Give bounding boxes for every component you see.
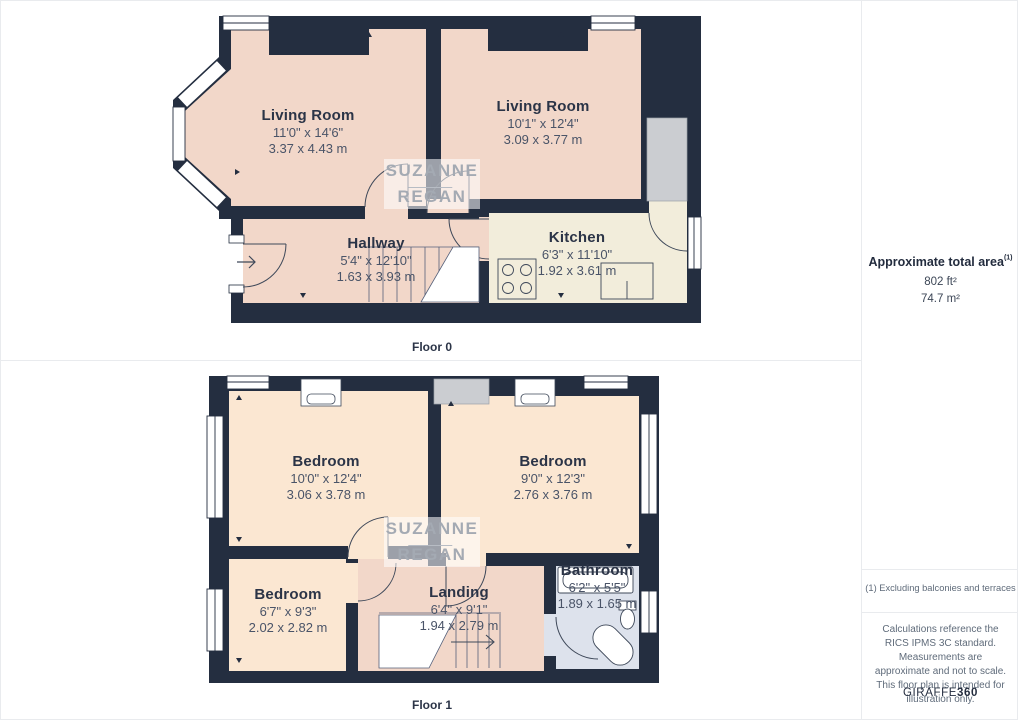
- room-dim-imperial: 10'1" x 12'4": [496, 116, 589, 131]
- total-area-imperial: 802 ft²: [862, 276, 1018, 288]
- storage-recess: [647, 118, 687, 201]
- room-label-bedroom-1: Bedroom 10'0" x 12'4" 3.06 x 3.78 m: [287, 453, 366, 502]
- room-name: Landing: [420, 584, 499, 601]
- room-name: Bedroom: [249, 586, 328, 603]
- watermark-floor1: SUZANNE REGAN: [384, 517, 480, 567]
- room-dim-metric: 3.37 x 4.43 m: [261, 141, 354, 156]
- room-label-landing: Landing 6'4" x 9'1" 1.94 x 2.79 m: [420, 584, 499, 633]
- room-label-bedroom-2: Bedroom 9'0" x 12'3" 2.76 x 3.76 m: [514, 453, 593, 502]
- storage-recess-floor1: [434, 379, 489, 404]
- room-label-hallway: Hallway 5'4" x 12'10" 1.63 x 3.93 m: [337, 235, 416, 284]
- brand-suffix: 360: [957, 687, 978, 699]
- room-label-bathroom: Bathroom 6'2" x 5'5" 1.89 x 1.65 m: [558, 562, 637, 611]
- room-dim-imperial: 5'4" x 12'10": [337, 253, 416, 268]
- room-dim-imperial: 6'7" x 9'3": [249, 604, 328, 619]
- fireplace-niche-2: [515, 379, 555, 406]
- room-dim-metric: 1.94 x 2.79 m: [420, 618, 499, 633]
- room-label-living-room-1: Living Room 11'0" x 14'6" 3.37 x 4.43 m: [261, 107, 354, 156]
- total-area-title: Approximate total area: [868, 255, 1003, 269]
- room-name: Kitchen: [538, 229, 617, 246]
- bay-window-middle: [173, 107, 185, 161]
- total-area-metric: 74.7 m²: [862, 293, 1018, 305]
- floor1-caption: Floor 1: [412, 698, 452, 712]
- brand-logo: GIRAFFE360: [862, 687, 1018, 699]
- total-area-footnote-marker: (1): [1004, 255, 1013, 262]
- room-name: Bedroom: [514, 453, 593, 470]
- room-label-living-room-2: Living Room 10'1" x 12'4" 3.09 x 3.77 m: [496, 98, 589, 147]
- floor0-caption: Floor 0: [412, 340, 452, 354]
- watermark-line2: REGAN: [398, 189, 467, 205]
- room-name: Bathroom: [558, 562, 637, 579]
- room-name: Hallway: [337, 235, 416, 252]
- watermark-line1: SUZANNE: [386, 163, 479, 179]
- area-footnote: (1) Excluding balconies and terraces: [862, 583, 1018, 593]
- info-sidebar: Approximate total area(1) 802 ft² 74.7 m…: [862, 1, 1018, 720]
- room-dim-imperial: 6'2" x 5'5": [558, 580, 637, 595]
- watermark-signature: [408, 539, 456, 546]
- floor-section-divider: [1, 360, 862, 361]
- room-dim-metric: 1.92 x 3.61 m: [538, 263, 617, 278]
- total-area-block: Approximate total area(1) 802 ft² 74.7 m…: [862, 253, 1018, 305]
- fireplace-niche-1: [301, 379, 341, 406]
- room-dim-imperial: 10'0" x 12'4": [287, 471, 366, 486]
- room-label-kitchen: Kitchen 6'3" x 11'10" 1.92 x 3.61 m: [538, 229, 617, 278]
- watermark-line1: SUZANNE: [386, 521, 479, 537]
- room-dim-metric: 3.06 x 3.78 m: [287, 487, 366, 502]
- room-dim-metric: 2.76 x 3.76 m: [514, 487, 593, 502]
- room-dim-metric: 1.63 x 3.93 m: [337, 269, 416, 284]
- room-dim-imperial: 6'4" x 9'1": [420, 602, 499, 617]
- brand-name: GIRAFFE: [903, 687, 957, 699]
- watermark-floor0: SUZANNE REGAN: [384, 159, 480, 209]
- room-dim-metric: 1.89 x 1.65 m: [558, 596, 637, 611]
- room-dim-imperial: 11'0" x 14'6": [261, 125, 354, 140]
- sidebar-section-divider: [862, 612, 1018, 613]
- floor-plan-page: SUZANNE REGAN SUZANNE REGAN Living Room …: [0, 0, 1018, 720]
- room-label-bedroom-3: Bedroom 6'7" x 9'3" 2.02 x 2.82 m: [249, 586, 328, 635]
- watermark-line2: REGAN: [398, 547, 467, 563]
- sidebar-section-divider: [862, 569, 1018, 570]
- room-name: Living Room: [496, 98, 589, 115]
- room-dim-metric: 2.02 x 2.82 m: [249, 620, 328, 635]
- room-name: Bedroom: [287, 453, 366, 470]
- watermark-signature: [408, 181, 456, 188]
- stove-icon: [498, 259, 536, 299]
- room-dim-imperial: 9'0" x 12'3": [514, 471, 593, 486]
- room-name: Living Room: [261, 107, 354, 124]
- room-dim-metric: 3.09 x 3.77 m: [496, 132, 589, 147]
- room-dim-imperial: 6'3" x 11'10": [538, 247, 617, 262]
